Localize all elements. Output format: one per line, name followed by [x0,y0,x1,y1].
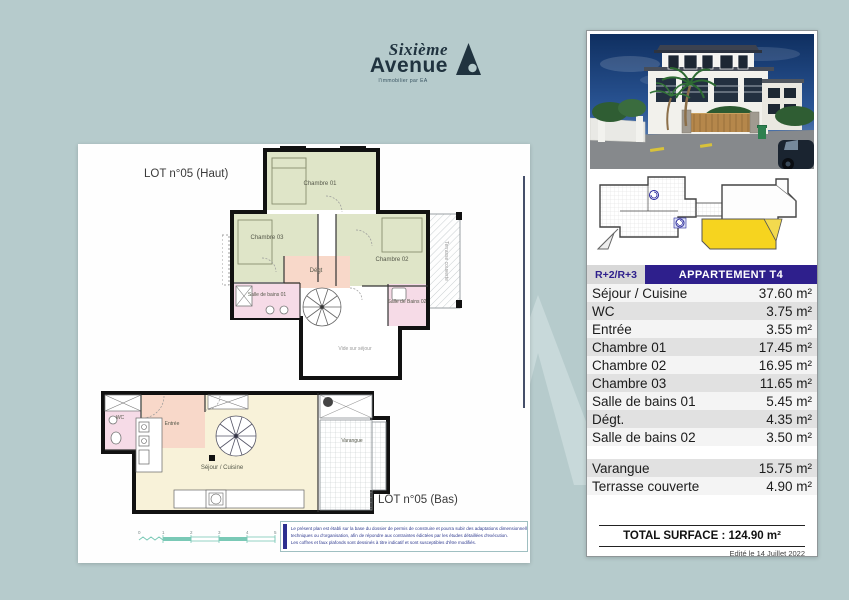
table-row: Chambre 0117.45 m² [587,338,817,356]
room-name: Varangue [592,461,650,476]
logo-text: Sixième Avenue l'immobilier par EA [358,42,448,84]
room-label-varangue: Varangue [341,438,362,444]
table-row: WC3.75 m² [587,302,817,320]
room-label-degt: Dégt [310,268,323,274]
room-label-entree: Entrée [165,421,180,427]
room-label-sdb02: Salle de Bains 02 [388,299,427,305]
room-name: Terrasse couverte [592,479,699,494]
room-name: Entrée [592,322,632,337]
building-rendering-photo [590,34,814,169]
room-name: WC [592,304,615,319]
room-area: 17.45 m² [759,340,812,355]
disclaimer-line-2: techniques ou d'organisation, afin de ré… [291,532,527,539]
room-name: Chambre 01 [592,340,666,355]
edition-date: Edité le 14 Juillet 2022 [599,549,805,558]
floor-plan-sheet-canvas: Sixième Avenue l'immobilier par EA LOT n… [0,0,849,600]
key-plan [590,171,814,261]
page-fold-mark [523,176,525,408]
room-name: Salle de bains 01 [592,394,696,409]
room-area: 37.60 m² [759,286,812,301]
table-row: Séjour / Cuisine37.60 m² [587,284,817,302]
disclaimer-line-1: Le présent plan est établi sur la base d… [291,525,527,532]
total-surface-block: TOTAL SURFACE : 124.90 m² Edité le 14 Ju… [599,525,805,558]
table-row: Salle de bains 015.45 m² [587,392,817,410]
area-table-exterior-rows: Varangue15.75 m² Terrasse couverte4.90 m… [587,459,817,495]
table-row: Terrasse couverte4.90 m² [587,477,817,495]
room-area: 3.50 m² [766,430,812,445]
plan-disclaimer-box: Le présent plan est établi sur la base d… [280,521,528,552]
room-label-sdb01: Salle de bains 01 [248,292,286,298]
table-row: Varangue15.75 m² [587,459,817,477]
table-row: Chambre 0311.65 m² [587,374,817,392]
sixieme-avenue-logo: Sixième Avenue l'immobilier par EA [358,42,482,84]
area-table-header: R+2/R+3 APPARTEMENT T4 [587,265,817,284]
room-area: 15.75 m² [759,461,812,476]
room-area: 4.90 m² [766,479,812,494]
room-area: 5.45 m² [766,394,812,409]
plan-sheet-page: LOT n°05 (Haut) LOT n°05 (Bas) [78,144,530,563]
svg-text:1: 1 [162,530,165,535]
room-name: Salle de bains 02 [592,430,696,445]
scale-bar: 0 1 2 3 4 5 [137,528,287,546]
logo-name-bottom: Avenue [358,57,448,74]
spiral-staircase-lower-icon [216,416,256,456]
svg-text:0: 0 [138,530,141,535]
area-table-main-rows: Séjour / Cuisine37.60 m² WC3.75 m² Entré… [587,284,817,446]
svg-text:5: 5 [274,530,277,535]
room-name: Chambre 03 [592,376,666,391]
room-label-sejour: Séjour / Cuisine [201,465,243,471]
highlighted-apartment-area [702,219,776,249]
apartment-info-panel: R+2/R+3 APPARTEMENT T4 Séjour / Cuisine3… [586,30,818,557]
room-area: 3.75 m² [766,304,812,319]
disclaimer-line-3: Les coffres et faux plafonds sont dessin… [291,539,527,546]
room-area: 16.95 m² [759,358,812,373]
lower-floor-plan [100,382,395,522]
logo-tagline: l'immobilier par EA [358,78,448,84]
table-row: Chambre 0216.95 m² [587,356,817,374]
room-label-vide: Vide sur séjour [338,346,371,352]
table-row: Entrée3.55 m² [587,320,817,338]
spiral-staircase-upper-icon [303,288,341,326]
apartment-title: APPARTEMENT T4 [645,265,817,284]
room-label-chambre01: Chambre 01 [303,181,336,187]
lot-haut-label: LOT n°05 (Haut) [144,168,228,180]
level-badge: R+2/R+3 [587,265,645,284]
logo-a-mark-icon [455,42,482,76]
room-area: 3.55 m² [766,322,812,337]
room-label-chambre03: Chambre 03 [250,235,283,241]
svg-text:3: 3 [218,530,221,535]
room-name: Séjour / Cuisine [592,286,687,301]
svg-text:4: 4 [246,530,249,535]
room-area: 4.35 m² [766,412,812,427]
room-name: Chambre 02 [592,358,666,373]
table-row: Dégt.4.35 m² [587,410,817,428]
room-label-terrasse: Terrasse couverte [443,241,449,281]
svg-text:2: 2 [190,530,193,535]
table-row: Salle de bains 023.50 m² [587,428,817,446]
room-label-chambre02: Chambre 02 [375,257,408,263]
room-label-wc: WC [116,415,124,421]
room-area: 11.65 m² [760,376,812,391]
disclaimer-text: Le présent plan est établi sur la base d… [287,522,527,551]
room-name: Dégt. [592,412,624,427]
total-surface-label: TOTAL SURFACE : 124.90 m² [599,526,805,547]
